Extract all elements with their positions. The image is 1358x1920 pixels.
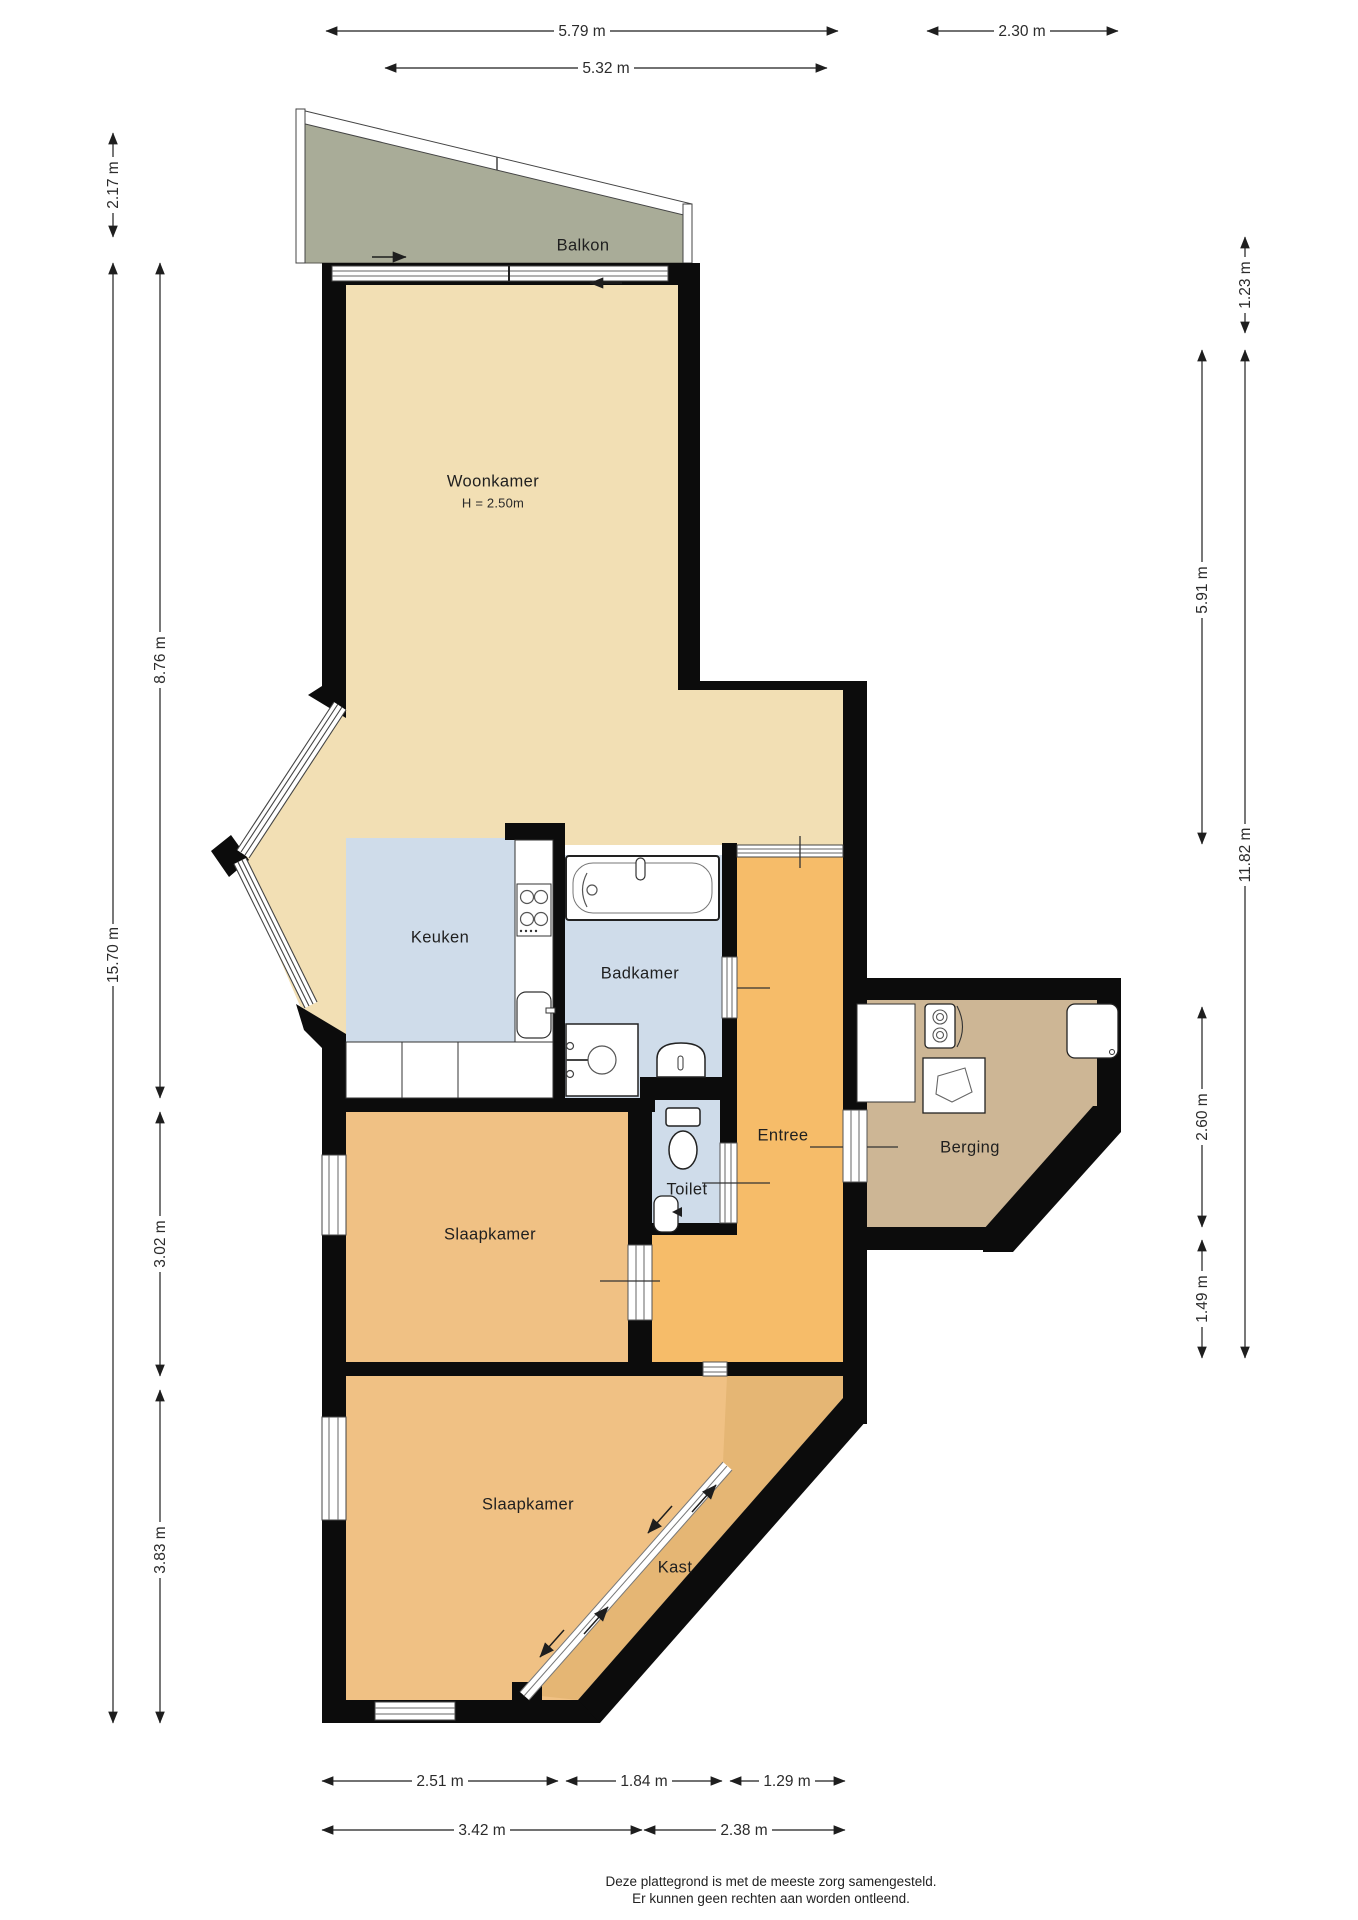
balkon-door-window	[332, 266, 668, 281]
keuken-counter-bottom	[346, 1042, 553, 1098]
dim-top-outer: 5.79 m	[558, 23, 605, 40]
entree-entry-door	[737, 845, 843, 857]
disclaimer-line2: Er kunnen geen rechten aan worden ontlee…	[606, 1890, 937, 1907]
disclaimer-line1: Deze plattegrond is met de meeste zorg s…	[606, 1873, 937, 1890]
keuken-label: Keuken	[411, 929, 469, 948]
dim-left-balkon: 2.17 m	[105, 161, 122, 208]
disclaimer: Deze plattegrond is met de meeste zorg s…	[606, 1873, 937, 1907]
wall-mid-horizontal	[322, 1098, 655, 1112]
floorplan-drawing: 5.79 m 2.30 m 5.32 m 2.17 m 15.70 m 8.76…	[0, 0, 1358, 1920]
dim-left-midden: 3.02 m	[152, 1220, 169, 1267]
badkamer-toilet-flush	[678, 1056, 683, 1070]
shower-knob	[567, 1071, 574, 1078]
wall-slaapkamer1-right	[628, 1100, 652, 1376]
dim-right-berging: 2.60 m	[1194, 1093, 1211, 1140]
stove	[517, 884, 551, 936]
wall-berging-top	[843, 978, 1121, 1000]
toilet-label: Toilet	[667, 1181, 708, 1200]
toilet-cistern	[666, 1108, 700, 1126]
dim-left-totaal: 15.70 m	[105, 927, 122, 983]
wall-berging-bottom	[843, 1227, 1000, 1250]
dim-bottom-midden: 1.84 m	[620, 1773, 667, 1790]
bathtub-faucet	[636, 858, 645, 880]
balkon-railing-right	[683, 204, 692, 263]
toilet-basin	[654, 1196, 678, 1232]
toilet-bowl	[669, 1131, 697, 1169]
wall-left-upper	[322, 263, 346, 690]
kast-door	[703, 1362, 727, 1376]
wall-badkamer-left	[553, 838, 565, 1098]
washing-machine	[923, 1058, 985, 1113]
dim-left-onder: 3.83 m	[152, 1526, 169, 1573]
dim-right-totaal: 11.82 m	[1237, 828, 1254, 883]
wall-toilet-bottom	[628, 1223, 737, 1235]
badkamer-label: Badkamer	[601, 965, 679, 984]
balkon-railing-left	[296, 109, 305, 263]
dim-right-balkon: 1.23 m	[1237, 261, 1254, 308]
dim-left-boven: 8.76 m	[152, 636, 169, 683]
berging-label: Berging	[940, 1139, 1000, 1158]
wall-entree-bottom	[322, 1362, 867, 1376]
wall-counter-top	[505, 823, 565, 840]
slaapkamer-onder-label: Slaapkamer	[482, 1496, 574, 1515]
dim-top-right: 2.30 m	[998, 23, 1045, 40]
badkamer-door	[722, 957, 737, 1018]
bathtub-drain	[587, 885, 597, 895]
dim-bottom-rechts: 1.29 m	[763, 1773, 810, 1790]
berging-door	[843, 1110, 867, 1182]
slaapkamer1-window	[322, 1155, 346, 1235]
wall-kast-right	[843, 1376, 867, 1424]
dim-right-entree: 1.49 m	[1194, 1275, 1211, 1322]
dim-bottom-binnen-links: 3.42 m	[458, 1822, 505, 1839]
dim-bottom-binnen-rechts: 2.38 m	[720, 1822, 767, 1839]
shower-knob	[567, 1043, 574, 1050]
slaapkamer-midden-label: Slaapkamer	[444, 1226, 536, 1245]
wall-bottom	[322, 1700, 600, 1723]
slaapkamer2-bottom-window	[375, 1702, 455, 1720]
keuken-sink-faucet	[546, 1008, 555, 1013]
dim-bottom-links: 2.51 m	[416, 1773, 463, 1790]
wall-right-woonkamer	[678, 263, 700, 690]
entree-label: Entree	[757, 1127, 808, 1146]
kast-label: Kast	[658, 1559, 693, 1578]
keuken-sink	[517, 992, 551, 1038]
berging-boiler	[925, 1004, 955, 1048]
dim-right-boven: 5.91 m	[1194, 566, 1211, 613]
slaapkamer1-door	[628, 1245, 652, 1320]
dim-top-inner: 5.32 m	[582, 60, 629, 77]
slaapkamer2-window	[322, 1417, 346, 1520]
woonkamer-label: Woonkamer	[447, 473, 539, 492]
balkon-label: Balkon	[557, 237, 610, 256]
woonkamer-height-note: H = 2.50m	[462, 496, 524, 511]
berging-cupboard	[857, 1004, 915, 1102]
wall-ext-top-line	[700, 681, 867, 690]
floorplan-canvas: 5.79 m 2.30 m 5.32 m 2.17 m 15.70 m 8.76…	[0, 0, 1358, 1920]
